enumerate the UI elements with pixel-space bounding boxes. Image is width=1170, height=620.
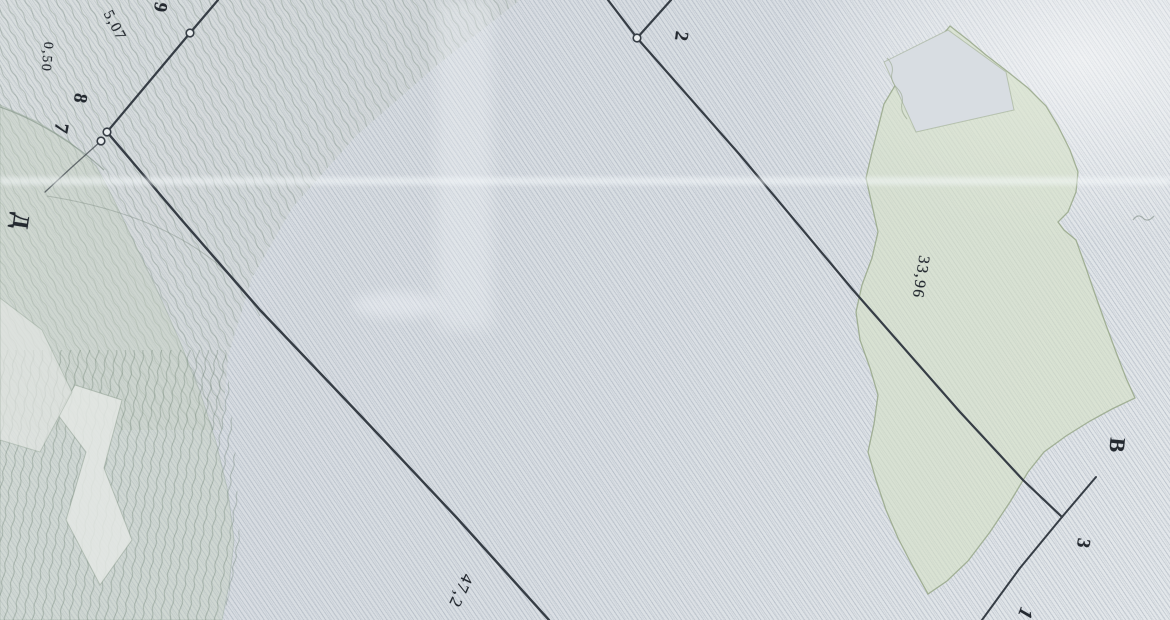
boundary-line-2-up-left xyxy=(608,0,637,38)
point-number-label: Д xyxy=(9,212,34,231)
survey-plan-photo: 987Д2В310,505,0733,9647,2 xyxy=(0,0,1170,620)
terrain-regions xyxy=(0,0,1135,620)
survey-point-9 xyxy=(186,29,194,37)
pencil-squiggle xyxy=(1133,216,1154,220)
paper-crease-vertical xyxy=(436,0,492,330)
boundary-line-2-up-right xyxy=(637,0,671,38)
paper-crease-smudge xyxy=(352,292,442,318)
paper-crease-horizontal xyxy=(0,177,1170,185)
point-number-label: В xyxy=(1105,437,1128,454)
survey-plan-drawing xyxy=(0,0,1170,620)
survey-point-2 xyxy=(633,34,641,42)
point-number-label: 2 xyxy=(671,30,691,42)
survey-point-8 xyxy=(103,128,111,136)
survey-point-7 xyxy=(97,137,105,145)
dimension-label: 0,50 xyxy=(38,41,55,73)
